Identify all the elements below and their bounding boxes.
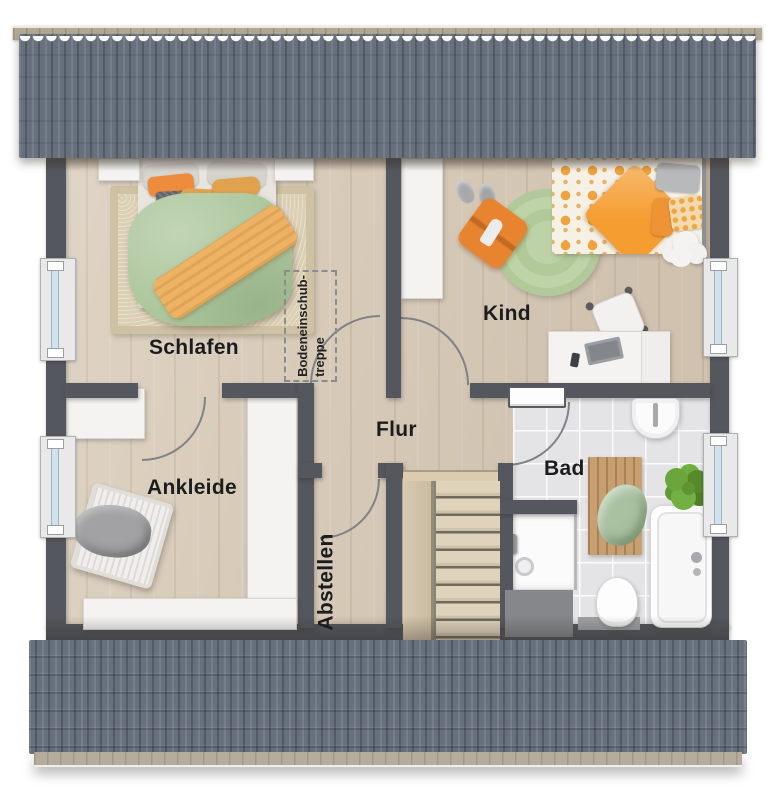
attic-hatch-outline: Bodeneinschub- treppe (284, 270, 337, 382)
plant (682, 482, 695, 495)
sink-faucet (653, 403, 658, 427)
roof-scallop-row (19, 36, 756, 45)
tub-handle (693, 568, 701, 576)
window-handle-bottom (47, 525, 64, 535)
bathtub-basin (657, 512, 707, 623)
shower-drain (515, 557, 534, 576)
wall-shower-stub (498, 500, 577, 514)
kind-pillow-dotted (668, 194, 706, 232)
doll (479, 217, 505, 248)
roof-bottom (29, 640, 747, 754)
wall-kind-bad (470, 383, 710, 398)
wall-left-middle (46, 357, 66, 440)
wall-schlafen-ankleide-a (65, 383, 138, 398)
wall-divider-schlafen-kind (386, 158, 401, 398)
window-handle-top (710, 436, 727, 446)
cloud-lobe (670, 247, 692, 267)
kind-wardrobe (401, 158, 443, 299)
tub-faucet (691, 552, 702, 563)
window-glass (714, 438, 722, 532)
window-handle-top (710, 261, 727, 271)
attic-hatch-label-line1: Bodeneinschub- (295, 275, 310, 377)
window-ankleide (40, 436, 76, 538)
window-handle-top (47, 439, 64, 449)
window-glass (51, 441, 59, 533)
phone (570, 352, 580, 367)
wall-left-upper (46, 158, 66, 262)
wall-schlafen-ankleide-b (222, 383, 298, 398)
wall-abstellen-top-left (298, 463, 322, 478)
wall-left-lower (46, 533, 66, 628)
window-handle-top (47, 261, 64, 271)
shower-glass-panel (574, 514, 577, 590)
roof-shadow-top (46, 158, 729, 171)
window-handle-bottom (710, 344, 727, 354)
wall-abstellen-stairs (386, 463, 402, 628)
wall-right-middle (710, 351, 729, 437)
label-schlafen: Schlafen (149, 336, 239, 360)
label-ankleide: Ankleide (147, 476, 237, 500)
window-bad (703, 433, 738, 537)
wall-right-upper (710, 158, 729, 262)
floorplan-upper-storey: Bodeneinschub- treppe Schlafen Kind (0, 0, 775, 796)
radiator (508, 386, 566, 408)
label-bad: Bad (544, 457, 585, 481)
attic-hatch-label-line2: treppe (312, 337, 327, 377)
wall-right-lower (710, 533, 729, 628)
roof-gutter (34, 752, 742, 767)
window-kind (703, 258, 738, 357)
label-flur: Flur (376, 418, 417, 442)
window-schlafen (40, 258, 76, 361)
cloud-table (662, 231, 708, 269)
window-handle-bottom (47, 348, 64, 358)
double-bed (138, 158, 276, 326)
window-glass (51, 263, 59, 356)
window-handle-bottom (710, 524, 727, 534)
desk-cabinet (641, 332, 670, 383)
roof-top (19, 34, 756, 158)
window-glass (714, 263, 722, 352)
roof-shadow-bottom (46, 616, 729, 640)
label-kind: Kind (483, 302, 531, 326)
desk (548, 331, 670, 384)
laptop (584, 336, 624, 365)
